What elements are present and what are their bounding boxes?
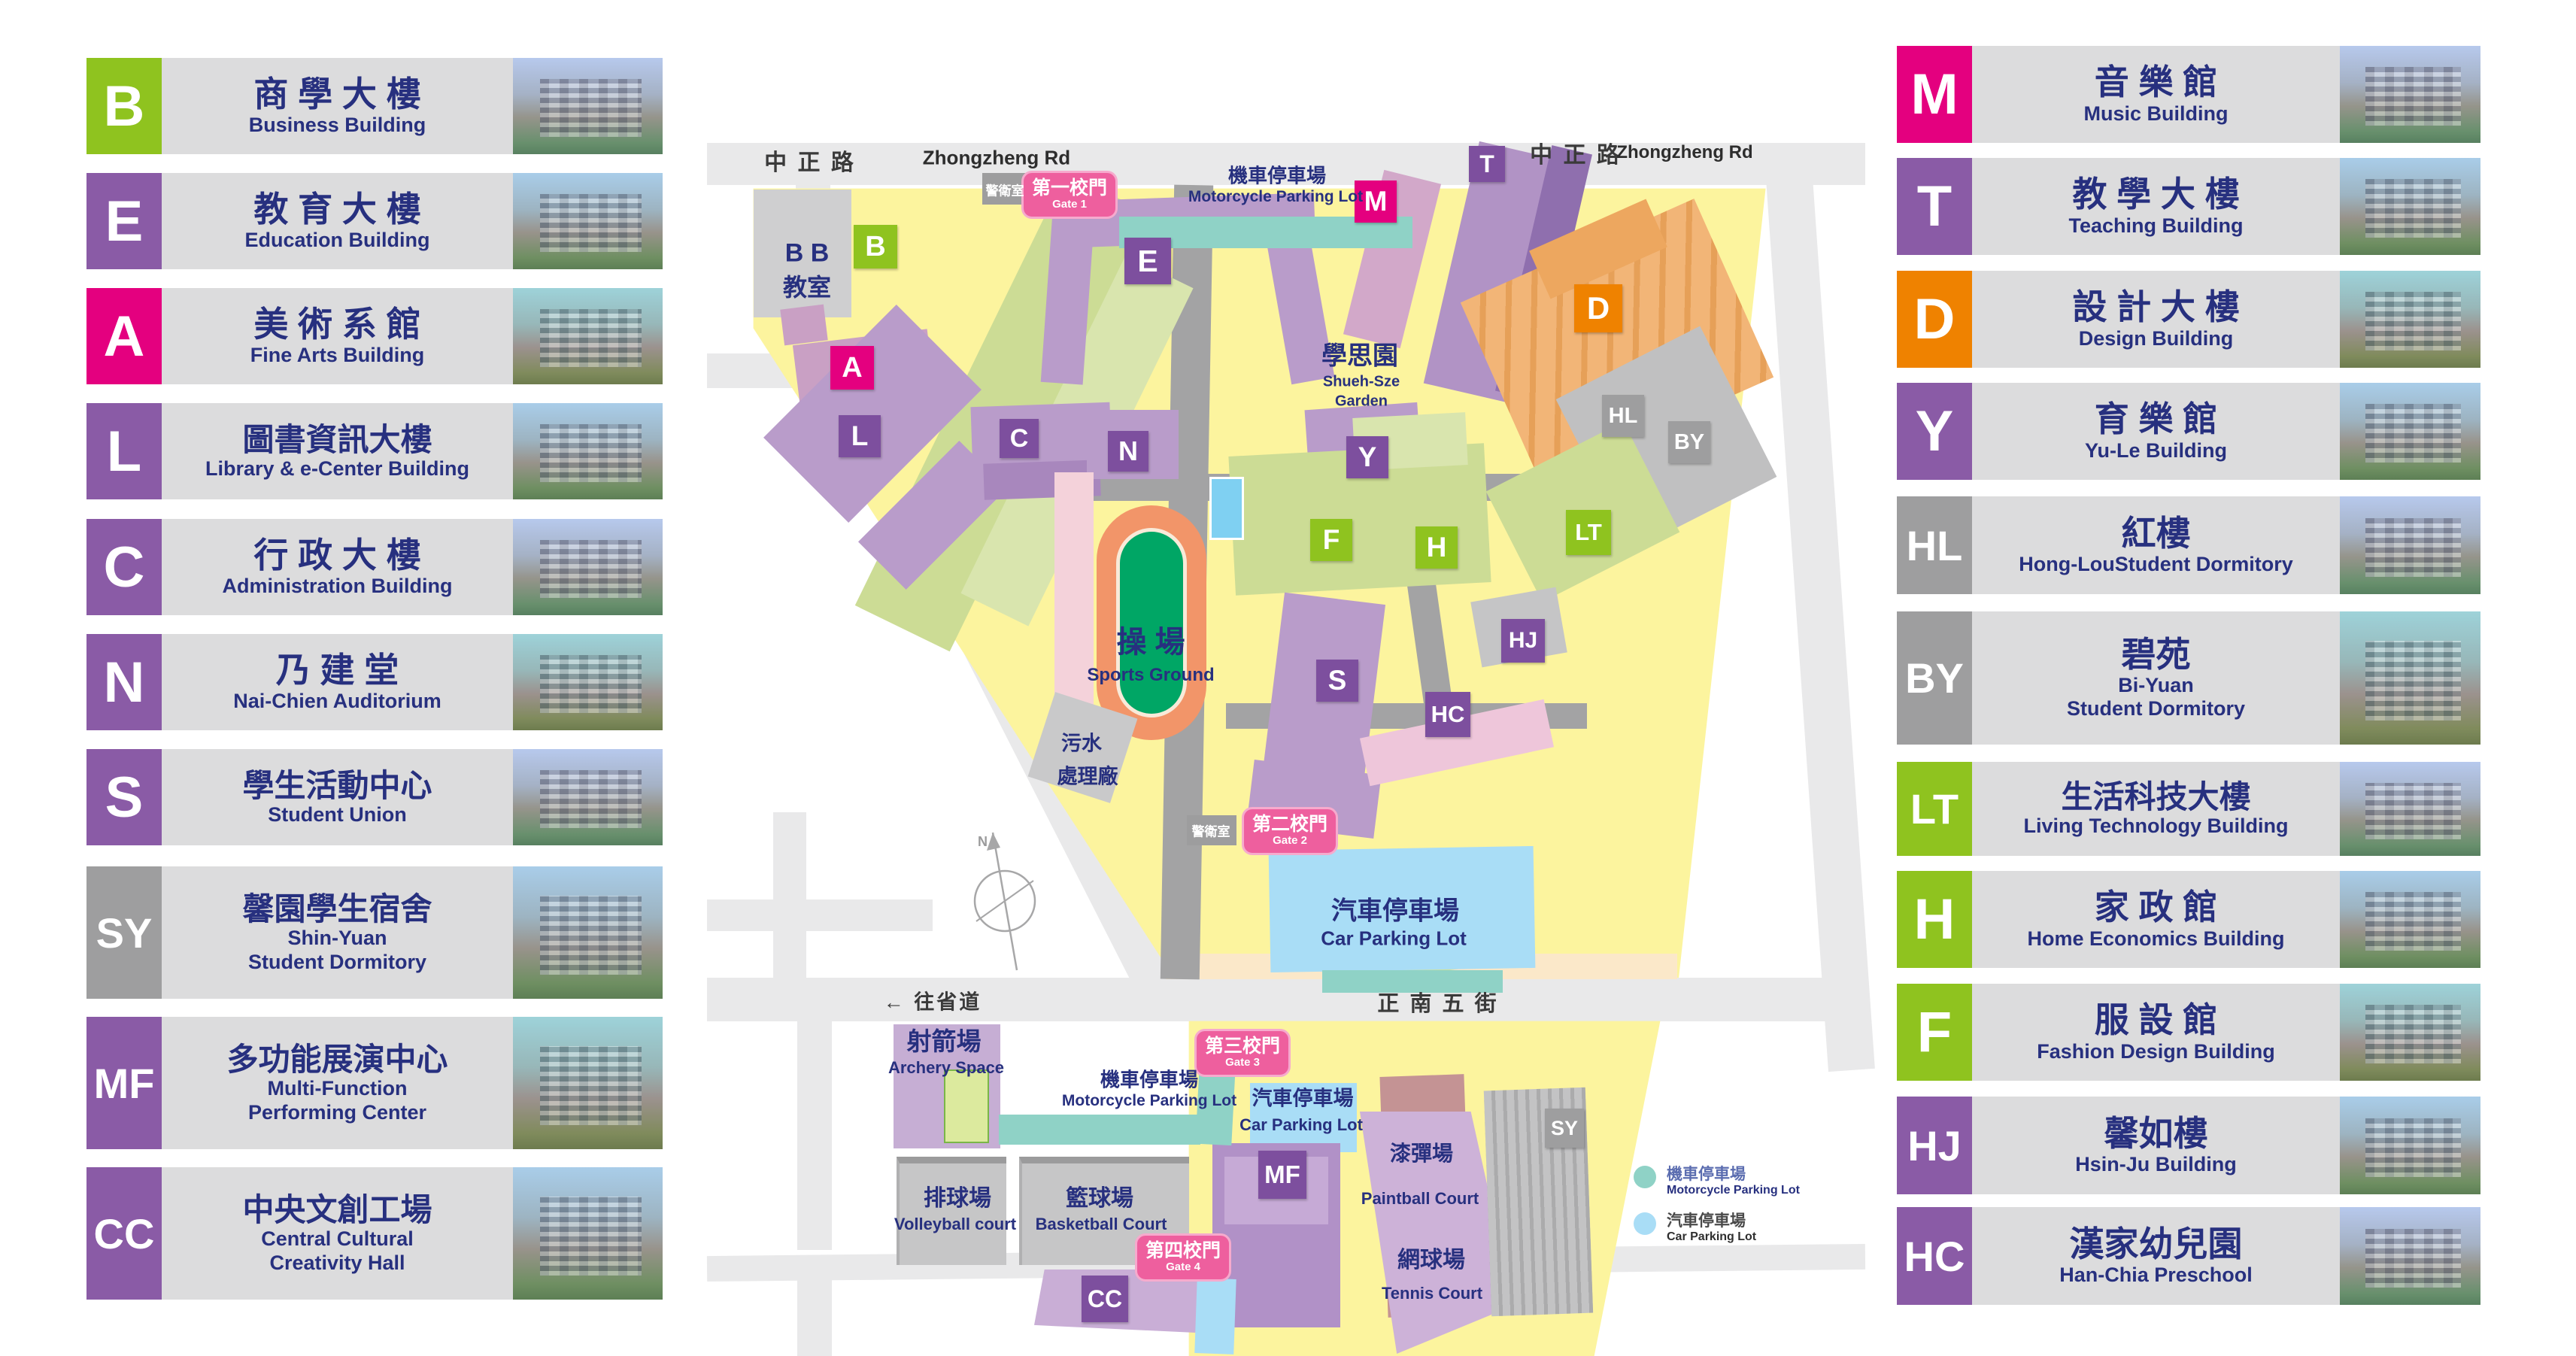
building-row-text: 家 政 館Home Economics Building: [1972, 871, 2340, 968]
map-shape: [797, 1021, 832, 1250]
map-tile-T: T: [1469, 146, 1505, 182]
building-code: SY: [96, 909, 153, 957]
building-title-en: Hong-LouStudent Dormitory: [2019, 553, 2292, 576]
building-code-tile: Y: [1897, 383, 1972, 480]
building-title-en: Yu-Le Building: [2085, 439, 2227, 463]
building-row-text: 多功能展演中心Multi-FunctionPerforming Center: [162, 1017, 513, 1149]
building-code-tile: H: [1897, 871, 1972, 968]
map-tile-code: H: [1427, 532, 1447, 563]
map-label: Basketball Court: [1036, 1215, 1167, 1234]
map-shape: [944, 1069, 989, 1143]
building-title-en: Administration Building: [223, 575, 453, 598]
building-row-F: F服 設 館Fashion Design Building: [1897, 984, 2480, 1081]
map-label: Paintball Court: [1361, 1189, 1479, 1209]
map-tile-code: N: [1118, 435, 1138, 467]
map-label: 正 南 五 街: [1377, 986, 1498, 1018]
legend-text: 機車停車場Motorcycle Parking Lot: [1667, 1166, 1800, 1197]
building-title-zh: 馨如樓: [2104, 1115, 2208, 1154]
building-title-zh: 漢家幼兒園: [2070, 1225, 2243, 1264]
building-code-tile: C: [86, 519, 162, 615]
building-photo: [2340, 611, 2480, 745]
building-photo: [513, 403, 663, 499]
building-title-zh: 教 學 大 樓: [2072, 175, 2239, 214]
campus-map: N BAEMTDLCNYHLBYFHLTHJSHCMFSYCC第一校門Gate …: [707, 0, 1865, 1356]
map-label: 污水: [1061, 727, 1102, 757]
map-tile-C: C: [1000, 419, 1039, 458]
map-tile-HL: HL: [1602, 395, 1644, 437]
map-tile-L: L: [839, 415, 881, 457]
building-row-LT: LT生活科技大樓Living Technology Building: [1897, 762, 2480, 856]
building-photo: [2340, 762, 2480, 856]
building-row-text: 服 設 館Fashion Design Building: [1972, 984, 2340, 1081]
building-photo: [513, 288, 663, 384]
map-tile-SY: SY: [1545, 1109, 1584, 1148]
map-tile-code: L: [851, 420, 869, 452]
building-row-text: 碧苑Bi-YuanStudent Dormitory: [1972, 611, 2340, 745]
building-title-en: Fine Arts Building: [250, 344, 425, 367]
map-label: 學思園: [1321, 335, 1398, 372]
building-code: A: [104, 304, 145, 369]
building-title-zh: 商 學 大 樓: [253, 75, 420, 114]
building-code-tile: HC: [1897, 1207, 1972, 1305]
map-tile-code: HL: [1609, 404, 1638, 429]
building-title-en: Business Building: [249, 114, 426, 137]
building-photo: [2340, 1207, 2480, 1305]
building-row-C: C行 政 大 樓Administration Building: [86, 519, 663, 615]
building-code-tile: MF: [86, 1017, 162, 1149]
building-row-SY: SY馨園學生宿舍Shin-YuanStudent Dormitory: [86, 866, 663, 999]
map-label: Zhongzheng Rd: [1616, 142, 1752, 163]
map-label: Volleyball court: [894, 1215, 1016, 1234]
map-label: Motorcycle Parking Lot: [1188, 188, 1363, 206]
map-tile-LT: LT: [1566, 510, 1611, 555]
map-label: 汽車停車場: [1252, 1082, 1354, 1112]
building-title-en: Multi-Function: [268, 1077, 408, 1100]
building-photo: [513, 173, 663, 269]
map-tile-code: M: [1364, 186, 1388, 217]
building-code-tile: A: [86, 288, 162, 384]
map-tile-code: Y: [1358, 441, 1377, 473]
building-photo: [2340, 158, 2480, 255]
gate-1: 第一校門Gate 1: [1021, 171, 1118, 219]
building-photo: [513, 58, 663, 154]
building-row-H: H家 政 館Home Economics Building: [1897, 871, 2480, 968]
building-row-text: 乃 建 堂Nai-Chien Auditorium: [162, 634, 513, 730]
building-photo: [513, 519, 663, 615]
building-title-en: Hsin-Ju Building: [2075, 1153, 2236, 1176]
map-label: 操 場: [1116, 617, 1185, 661]
building-row-S: S學生活動中心Student Union: [86, 749, 663, 845]
building-row-HJ: HJ馨如樓Hsin-Ju Building: [1897, 1097, 2480, 1194]
map-tile-B: B: [854, 225, 897, 268]
building-code-tile: BY: [1897, 611, 1972, 745]
legend-swatch: [1634, 1166, 1656, 1188]
building-title-zh: 育 樂 館: [2095, 400, 2218, 439]
building-title-en: Library & e-Center Building: [205, 457, 469, 481]
map-tile-code: S: [1328, 665, 1347, 696]
building-title-en: Han-Chia Preschool: [2059, 1263, 2253, 1287]
gate-name-zh: 第四校門: [1145, 1242, 1221, 1260]
map-tile-A: A: [830, 346, 874, 390]
map-tile-code: LT: [1575, 519, 1602, 546]
building-title-zh: 服 設 館: [2095, 1001, 2218, 1040]
building-row-text: 育 樂 館Yu-Le Building: [1972, 383, 2340, 480]
building-row-A: A美 術 系 館Fine Arts Building: [86, 288, 663, 384]
building-photo: [2340, 46, 2480, 143]
map-shape: [1194, 1278, 1236, 1354]
building-row-text: 中央文創工場Central CulturalCreativity Hall: [162, 1167, 513, 1300]
building-row-N: N乃 建 堂Nai-Chien Auditorium: [86, 634, 663, 730]
building-row-text: 學生活動中心Student Union: [162, 749, 513, 845]
building-code-tile: B: [86, 58, 162, 154]
building-code: H: [1914, 887, 1956, 952]
gate-4: 第四校門Gate 4: [1135, 1233, 1231, 1282]
map-shape: [1766, 176, 1875, 1072]
building-row-text: 生活科技大樓Living Technology Building: [1972, 762, 2340, 856]
building-code: C: [104, 535, 145, 600]
building-row-HC: HC漢家幼兒園Han-Chia Preschool: [1897, 1207, 2480, 1305]
building-title-zh: 馨園學生宿舍: [242, 891, 432, 927]
map-tile-code: HC: [1431, 701, 1465, 728]
building-row-B: B商 學 大 樓Business Building: [86, 58, 663, 154]
map-tile-code: MF: [1264, 1160, 1300, 1189]
building-title-zh: 音 樂 館: [2095, 63, 2218, 102]
map-tile-F: F: [1310, 519, 1352, 561]
building-title-en: Living Technology Building: [2024, 815, 2289, 838]
campus-map-poster: B商 學 大 樓Business BuildingE教 育 大 樓Educati…: [0, 0, 2576, 1356]
map-tile-code: A: [842, 352, 862, 384]
building-title-zh: 生活科技大樓: [2061, 779, 2250, 815]
map-tile-CC: CC: [1082, 1276, 1128, 1322]
building-code: T: [1917, 174, 1952, 239]
building-title-en: Student Dormitory: [2067, 697, 2245, 720]
map-label: Motorcycle Parking Lot: [1062, 1092, 1236, 1110]
map-tile-BY: BY: [1668, 421, 1710, 463]
building-code: B: [104, 74, 145, 139]
building-title-en: Performing Center: [248, 1101, 426, 1124]
building-title-zh: 圖書資訊大樓: [242, 422, 432, 457]
map-shape: [999, 1115, 1200, 1145]
map-tile-code: E: [1137, 244, 1158, 279]
map-tile-code: T: [1479, 150, 1494, 178]
map-tile-code: F: [1323, 524, 1340, 556]
building-row-M: M音 樂 館Music Building: [1897, 46, 2480, 143]
legend-label-zh: 汽車停車場: [1667, 1212, 1756, 1230]
legend-item-motorcycle: 機車停車場Motorcycle Parking Lot: [1634, 1166, 1874, 1197]
map-tile-HC: HC: [1425, 692, 1470, 737]
map-shape: [707, 899, 933, 931]
map-label: 漆彈場: [1390, 1137, 1453, 1167]
map-shape: [707, 978, 1865, 1021]
building-code: N: [104, 650, 145, 715]
building-row-MF: MF多功能展演中心Multi-FunctionPerforming Center: [86, 1017, 663, 1149]
map-tile-MF: MF: [1258, 1151, 1306, 1199]
map-label: Garden: [1335, 393, 1388, 411]
building-code: M: [1910, 62, 1958, 127]
map-label: Sports Ground: [1087, 665, 1214, 686]
map-label: B B: [785, 239, 830, 268]
building-row-HL: HL紅樓Hong-LouStudent Dormitory: [1897, 496, 2480, 594]
map-label: 中 正 路: [1530, 136, 1622, 169]
building-code-tile: E: [86, 173, 162, 269]
building-code: CC: [94, 1209, 155, 1258]
map-label: 網球場: [1397, 1241, 1465, 1274]
building-row-text: 設 計 大 樓Design Building: [1972, 271, 2340, 368]
building-code-tile: CC: [86, 1167, 162, 1300]
map-shape: [773, 812, 806, 978]
building-photo: [513, 1167, 663, 1300]
building-code: S: [105, 765, 144, 830]
building-code: HJ: [1907, 1121, 1962, 1170]
map-shape: [780, 305, 827, 346]
map-shape: [1209, 477, 1244, 540]
map-shape: [797, 1276, 832, 1356]
map-label: 機車停車場: [1100, 1065, 1198, 1093]
building-code-tile: S: [86, 749, 162, 845]
map-tile-E: E: [1124, 238, 1171, 284]
building-row-Y: Y育 樂 館Yu-Le Building: [1897, 383, 2480, 480]
building-row-BY: BY碧苑Bi-YuanStudent Dormitory: [1897, 611, 2480, 745]
building-code: MF: [94, 1059, 155, 1108]
gate-2: 第二校門Gate 2: [1242, 807, 1338, 855]
map-tile-Y: Y: [1346, 436, 1388, 478]
map-tile-code: CC: [1088, 1285, 1122, 1313]
building-title-zh: 美 術 系 館: [253, 305, 420, 344]
map-label: 汽車停車場: [1331, 890, 1459, 927]
map-label: 處理廠: [1057, 760, 1118, 790]
map-tile-D: D: [1574, 284, 1622, 332]
building-title-en: Shin-Yuan: [287, 927, 387, 950]
building-row-E: E教 育 大 樓Education Building: [86, 173, 663, 269]
map-tile-code: C: [1010, 424, 1029, 454]
building-code-tile: HJ: [1897, 1097, 1972, 1194]
building-code: BY: [1905, 654, 1964, 702]
svg-text:N: N: [978, 834, 988, 849]
building-row-text: 馨園學生宿舍Shin-YuanStudent Dormitory: [162, 866, 513, 999]
building-code: F: [1917, 1000, 1952, 1065]
building-title-en: Nai-Chien Auditorium: [233, 690, 441, 713]
building-title-zh: 紅樓: [2122, 514, 2191, 554]
building-code-tile: T: [1897, 158, 1972, 255]
building-title-en: Design Building: [2079, 327, 2234, 350]
map-label: 機車停車場: [1228, 161, 1326, 189]
building-title-zh: 教 育 大 樓: [253, 190, 420, 229]
gate-3: 第三校門Gate 3: [1194, 1029, 1291, 1077]
map-label: 射箭場: [907, 1021, 982, 1057]
building-photo: [513, 749, 663, 845]
building-photo: [2340, 496, 2480, 594]
gate-name-en: Gate 4: [1166, 1260, 1200, 1274]
legend-text: 汽車停車場Car Parking Lot: [1667, 1212, 1756, 1244]
building-title-en: Home Economics Building: [2027, 927, 2284, 951]
building-photo: [2340, 871, 2480, 968]
building-title-en: Bi-Yuan: [2118, 674, 2194, 697]
legend-swatch: [1634, 1212, 1656, 1235]
building-title-zh: 學生活動中心: [242, 768, 432, 803]
building-title-zh: 設 計 大 樓: [2072, 288, 2239, 327]
gate-name-zh: 第三校門: [1205, 1037, 1280, 1056]
map-tile-HJ: HJ: [1501, 619, 1545, 663]
building-code-tile: F: [1897, 984, 1972, 1081]
map-tile-code: BY: [1674, 430, 1704, 455]
building-title-en: Fashion Design Building: [2037, 1040, 2275, 1063]
building-row-text: 教 育 大 樓Education Building: [162, 173, 513, 269]
building-row-text: 紅樓Hong-LouStudent Dormitory: [1972, 496, 2340, 594]
building-photo: [2340, 1097, 2480, 1194]
map-label: Shueh-Sze: [1323, 374, 1400, 391]
map-label: 排球場: [924, 1179, 991, 1212]
building-code: Y: [1916, 399, 1954, 464]
building-row-text: 漢家幼兒園Han-Chia Preschool: [1972, 1207, 2340, 1305]
building-code-tile: M: [1897, 46, 1972, 143]
map-label: 籃球場: [1066, 1179, 1133, 1212]
map-tile-code: B: [865, 231, 885, 263]
building-photo: [2340, 383, 2480, 480]
building-row-text: 教 學 大 樓Teaching Building: [1972, 158, 2340, 255]
building-photo: [513, 1017, 663, 1149]
legend-label-en: Motorcycle Parking Lot: [1667, 1183, 1800, 1197]
building-code-tile: D: [1897, 271, 1972, 368]
building-row-CC: CC中央文創工場Central CulturalCreativity Hall: [86, 1167, 663, 1300]
building-row-text: 圖書資訊大樓Library & e-Center Building: [162, 403, 513, 499]
legend-label-zh: 機車停車場: [1667, 1166, 1800, 1183]
compass-icon: N: [963, 816, 1045, 978]
map-tile-N: N: [1108, 431, 1148, 472]
building-title-zh: 碧苑: [2122, 636, 2191, 675]
map-label: ← 往省道: [884, 986, 982, 1015]
building-title-en: Music Building: [2084, 102, 2229, 126]
legend-label-en: Car Parking Lot: [1667, 1230, 1756, 1244]
building-row-T: T教 學 大 樓Teaching Building: [1897, 158, 2480, 255]
map-label: Archery Space: [888, 1058, 1004, 1078]
map-label: 中 正 路: [764, 144, 856, 177]
building-title-en: Student Dormitory: [248, 951, 426, 974]
map-label: Car Parking Lot: [1321, 927, 1467, 951]
building-row-text: 馨如樓Hsin-Ju Building: [1972, 1097, 2340, 1194]
map-label: Tennis Court: [1382, 1284, 1482, 1303]
building-photo: [2340, 984, 2480, 1081]
map-label: Car Parking Lot: [1239, 1115, 1363, 1135]
map-tile-S: S: [1316, 660, 1358, 702]
building-title-en: Student Union: [268, 803, 406, 827]
building-title-en: Creativity Hall: [269, 1251, 405, 1275]
gate-name-en: Gate 2: [1273, 834, 1307, 848]
map-label: 教室: [783, 268, 831, 303]
building-title-zh: 行 政 大 樓: [253, 536, 420, 575]
building-photo: [2340, 271, 2480, 368]
gate-name-en: Gate 3: [1225, 1056, 1260, 1069]
building-row-text: 商 學 大 樓Business Building: [162, 58, 513, 154]
building-row-D: D設 計 大 樓Design Building: [1897, 271, 2480, 368]
map-tile-H: H: [1415, 526, 1458, 569]
building-code: D: [1914, 287, 1956, 352]
map-label: Zhongzheng Rd: [923, 147, 1070, 170]
building-title-en: Teaching Building: [2069, 214, 2244, 238]
building-title-zh: 家 政 館: [2095, 888, 2218, 927]
building-code: LT: [1910, 784, 1959, 833]
building-code: E: [105, 189, 144, 254]
gate-name-zh: 第二校門: [1252, 815, 1327, 834]
building-code-tile: SY: [86, 866, 162, 999]
building-code-tile: HL: [1897, 496, 1972, 594]
map-tile-code: D: [1587, 290, 1610, 326]
building-row-L: L圖書資訊大樓Library & e-Center Building: [86, 403, 663, 499]
building-title-zh: 乃 建 堂: [276, 651, 399, 690]
building-row-text: 美 術 系 館Fine Arts Building: [162, 288, 513, 384]
building-code: HL: [1907, 521, 1963, 570]
building-code-tile: LT: [1897, 762, 1972, 856]
building-code: HC: [1904, 1232, 1965, 1281]
building-row-text: 音 樂 館Music Building: [1972, 46, 2340, 143]
building-title-zh: 中央文創工場: [242, 1192, 432, 1227]
building-row-text: 行 政 大 樓Administration Building: [162, 519, 513, 615]
building-photo: [513, 634, 663, 730]
legend-item-car: 汽車停車場Car Parking Lot: [1634, 1212, 1874, 1244]
map-label: 警衛室: [1192, 821, 1230, 840]
map-label: 警衛室: [986, 180, 1024, 199]
building-code-tile: L: [86, 403, 162, 499]
building-title-zh: 多功能展演中心: [226, 1042, 448, 1077]
building-photo: [513, 866, 663, 999]
building-title-en: Central Cultural: [261, 1227, 414, 1251]
gate-name-en: Gate 1: [1052, 198, 1087, 211]
map-tile-code: HJ: [1509, 628, 1537, 654]
building-code-tile: N: [86, 634, 162, 730]
gate-name-zh: 第一校門: [1032, 179, 1107, 198]
map-tile-code: SY: [1551, 1117, 1578, 1140]
building-title-en: Education Building: [245, 229, 430, 252]
building-code: L: [107, 419, 141, 484]
